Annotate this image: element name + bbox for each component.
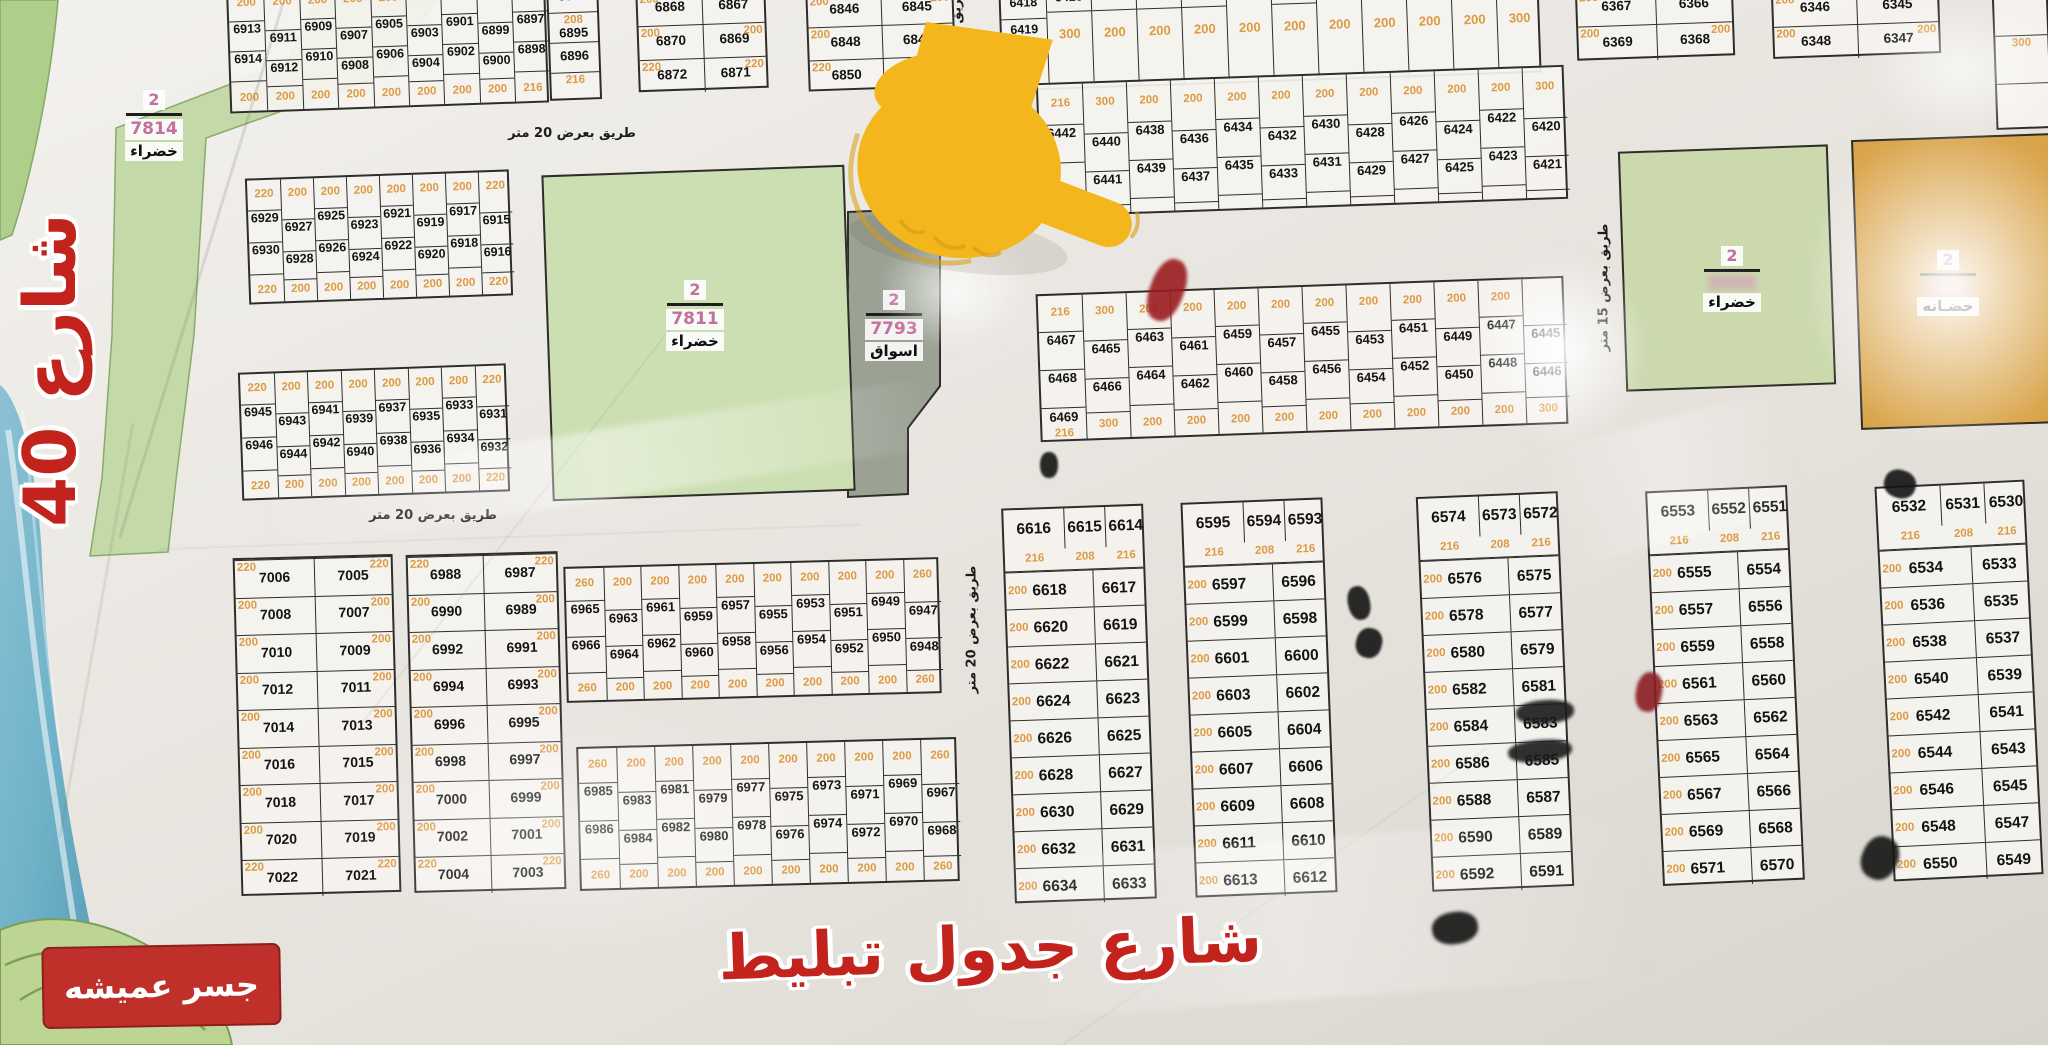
marker-blob: [1040, 452, 1058, 478]
street-40-label: شارع 40: [8, 155, 158, 585]
marker-blob: [1855, 831, 1906, 886]
bridge-box: جسر عميشه: [41, 943, 281, 1029]
marker-blob: [1345, 584, 1374, 622]
marker-blob: [1430, 909, 1480, 947]
pointing-hand-icon: [778, 6, 1171, 319]
marker-blob: [1140, 254, 1194, 326]
marker-blob: [1880, 466, 1919, 503]
marker-blob: [1507, 737, 1573, 764]
plot-map-photo: 2 7814 خضراء 2 7811 خضراء 2 7793 اسواق 2…: [0, 0, 2048, 1045]
marker-blob: [1515, 698, 1575, 726]
marker-blob: [1633, 670, 1666, 714]
marker-blob: [1353, 625, 1385, 660]
bridge-label: جسر عميشه: [64, 965, 260, 1006]
